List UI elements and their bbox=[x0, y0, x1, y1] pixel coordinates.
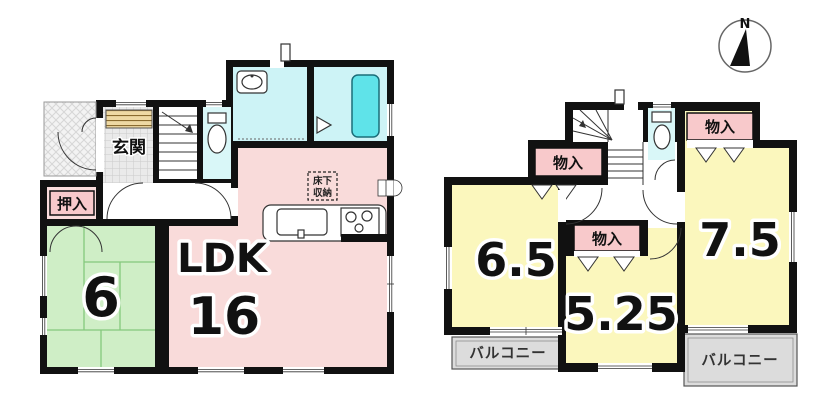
second-floor-plan: 物入 物入 物入 6.5 5.25 7.5 バルコニー バルコニー bbox=[444, 90, 797, 386]
tatami-room-size-label: 6 bbox=[82, 266, 120, 329]
toilet-tank-2f bbox=[652, 112, 671, 122]
room-5-25-label: 5.25 bbox=[564, 287, 678, 341]
toilet-tank-1f bbox=[208, 113, 226, 123]
window-toilet-top-2f bbox=[653, 102, 671, 110]
window-tatami-left-1 bbox=[40, 256, 47, 296]
hall-ldk-door-gap bbox=[231, 188, 238, 216]
closet-left-label: 物入 bbox=[553, 154, 583, 172]
ldk-size-label: 16 bbox=[188, 287, 260, 347]
toilet-bowl-1f bbox=[208, 125, 226, 153]
window-5-25-bottom bbox=[598, 363, 652, 372]
room-7-5-label: 7.5 bbox=[699, 213, 781, 267]
bathtub bbox=[352, 75, 379, 137]
room-6-5-label: 6.5 bbox=[475, 233, 557, 287]
closet-mid-label: 物入 bbox=[592, 230, 622, 248]
entrance-door-gap bbox=[96, 118, 104, 172]
toilet-bowl-2f bbox=[654, 125, 670, 149]
entrance-label: 玄関 bbox=[112, 137, 146, 158]
stairs-top-door-leaf bbox=[615, 90, 624, 104]
window-bath-right bbox=[387, 104, 394, 136]
closet-right-label: 物入 bbox=[705, 118, 735, 136]
stove-burner-3 bbox=[355, 224, 363, 232]
floor-plan-svg: 玄関 押入 6 LDK 16 床下 収納 bbox=[0, 0, 840, 406]
compass-north-label: N bbox=[740, 17, 751, 32]
sink-faucet bbox=[251, 75, 254, 78]
underfloor-label-2: 収納 bbox=[313, 187, 332, 199]
backdoor-leaf bbox=[281, 44, 290, 61]
shoe-cabinet bbox=[106, 110, 152, 128]
window-7-5-right bbox=[789, 212, 797, 262]
window-entrance-top bbox=[116, 100, 146, 107]
ldk-side-door bbox=[378, 180, 402, 196]
window-6-5-left bbox=[444, 247, 452, 289]
hallway-1f bbox=[103, 183, 231, 219]
stove-burner-1 bbox=[346, 212, 356, 222]
compass: N bbox=[719, 17, 771, 72]
first-floor-plan: 玄関 押入 6 LDK 16 床下 収納 bbox=[40, 44, 402, 374]
entrance-porch bbox=[44, 102, 96, 176]
stairs-top-door-gap bbox=[624, 102, 638, 110]
window-7-5-bottom bbox=[688, 325, 748, 333]
door-gap-7-5 bbox=[677, 192, 685, 222]
oshiire-label: 押入 bbox=[57, 195, 87, 213]
balcony-right-label: バルコニー bbox=[701, 352, 778, 369]
window-tatami-bottom bbox=[78, 367, 114, 374]
window-ldk-bottom-2 bbox=[283, 367, 324, 374]
door-gap-6-5 bbox=[558, 190, 566, 222]
window-ldk-right bbox=[387, 256, 394, 312]
balcony-left-label: バルコニー bbox=[469, 345, 546, 362]
counter-wall-stub bbox=[341, 234, 394, 242]
underfloor-label-1: 床下 bbox=[313, 175, 333, 187]
floor-plan-image: 玄関 押入 6 LDK 16 床下 収納 bbox=[0, 0, 840, 406]
window-toilet-top bbox=[206, 100, 222, 107]
ldk-label: LDK bbox=[177, 236, 269, 282]
window-tatami-left-2 bbox=[40, 318, 47, 335]
kitchen-counter bbox=[263, 205, 394, 242]
window-ldk-bottom-1 bbox=[198, 367, 244, 374]
stove-burner-2 bbox=[362, 211, 372, 221]
kitchen-faucet bbox=[298, 230, 304, 238]
window-6-5-bottom bbox=[490, 327, 562, 335]
